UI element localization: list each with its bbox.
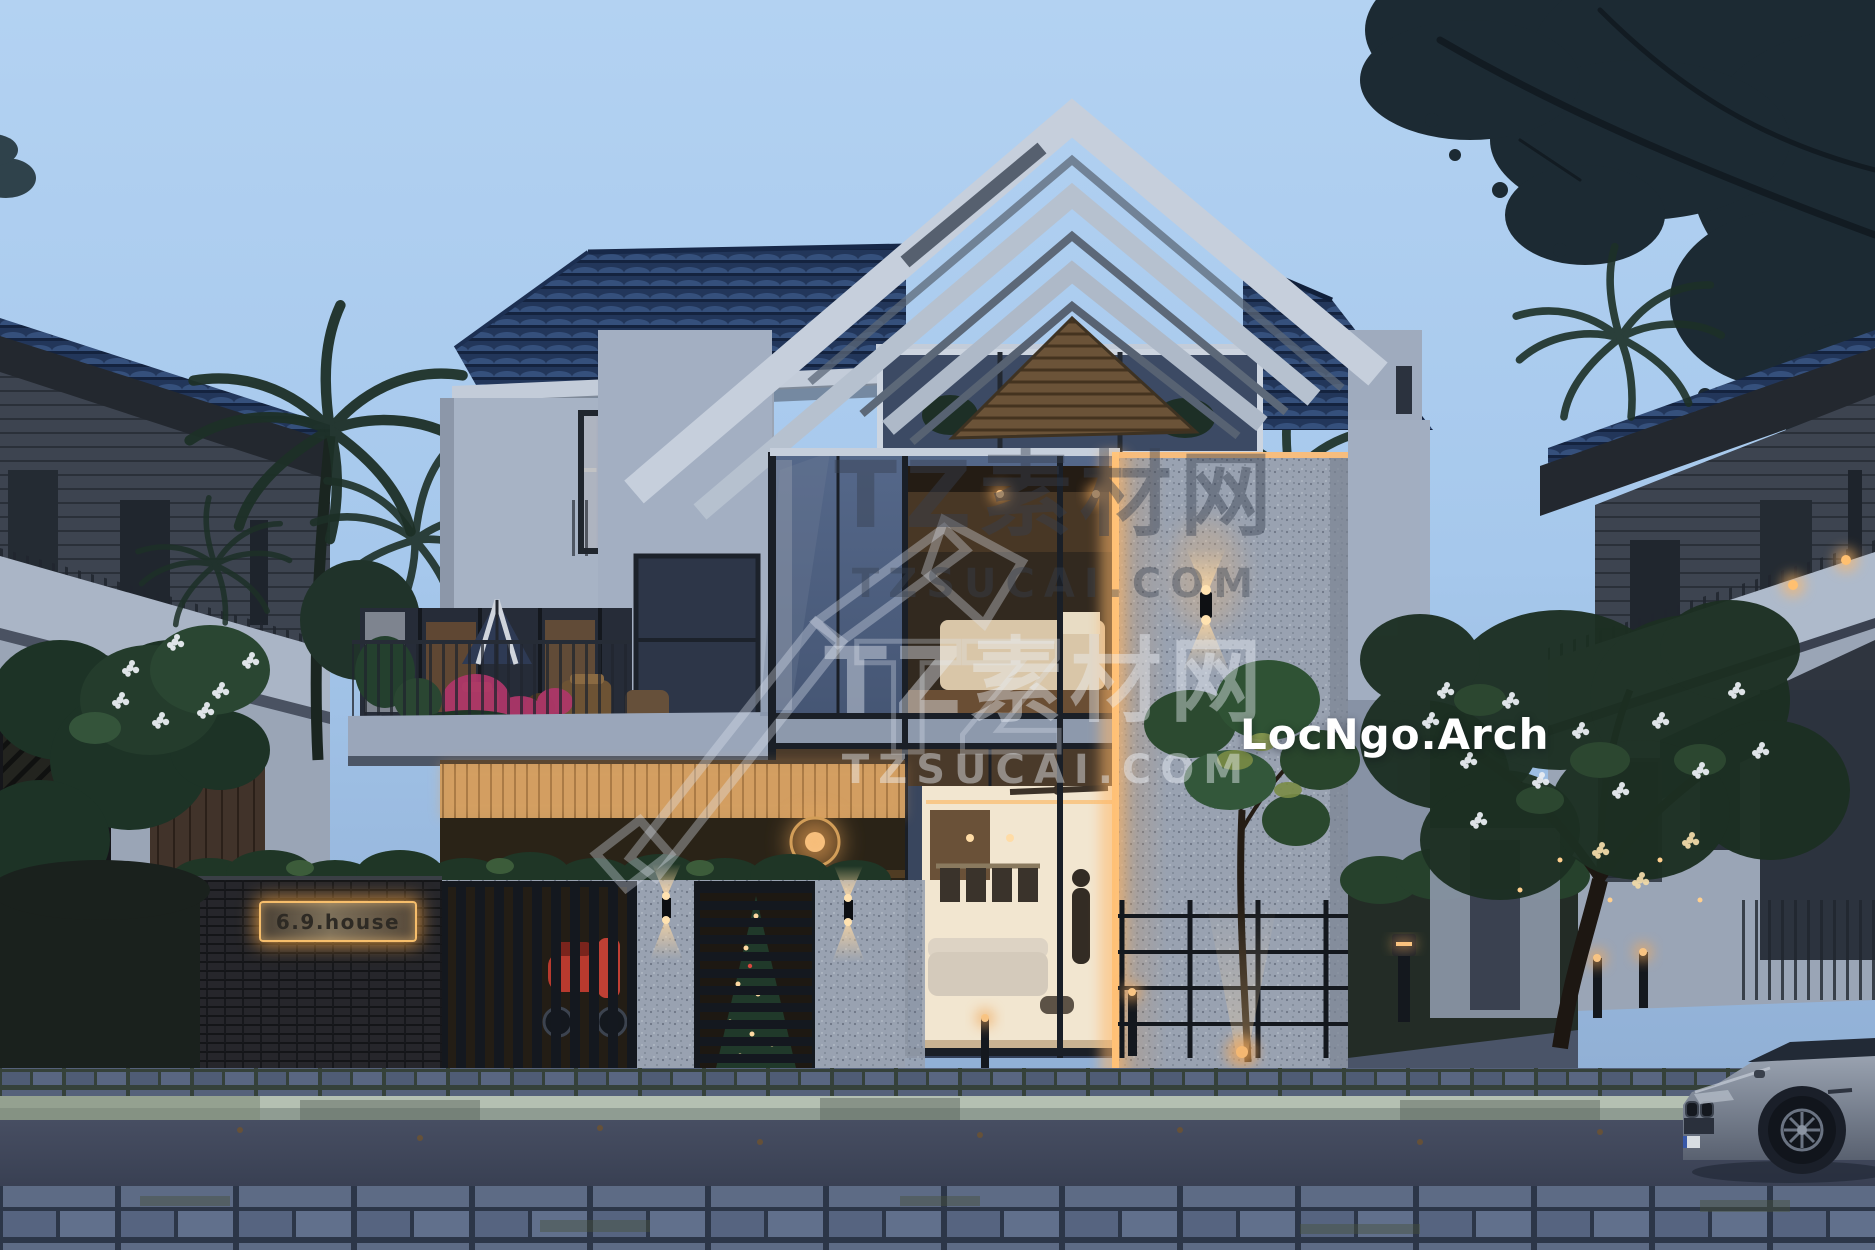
scene-canvas: TZ xyxy=(0,0,1875,1250)
person-silhouette xyxy=(1072,888,1090,964)
front-fence xyxy=(182,864,925,1076)
street xyxy=(0,1068,1875,1250)
carport-gate xyxy=(445,884,639,1076)
foreground-pavers xyxy=(0,1186,1875,1250)
pedestrian-gate xyxy=(697,884,815,1076)
sign-wall xyxy=(186,876,442,1076)
asphalt-road xyxy=(0,1120,1875,1190)
watermark-logo-letters: TZ xyxy=(856,611,1062,788)
sofa xyxy=(928,952,1048,996)
led-strip-top xyxy=(1118,452,1348,458)
architectural-render: TZ TZ素材网 TZSUCAI.COM TZ素材网 TZSUCAI.COM L… xyxy=(0,0,1875,1250)
living-room-interior xyxy=(922,774,1118,1056)
